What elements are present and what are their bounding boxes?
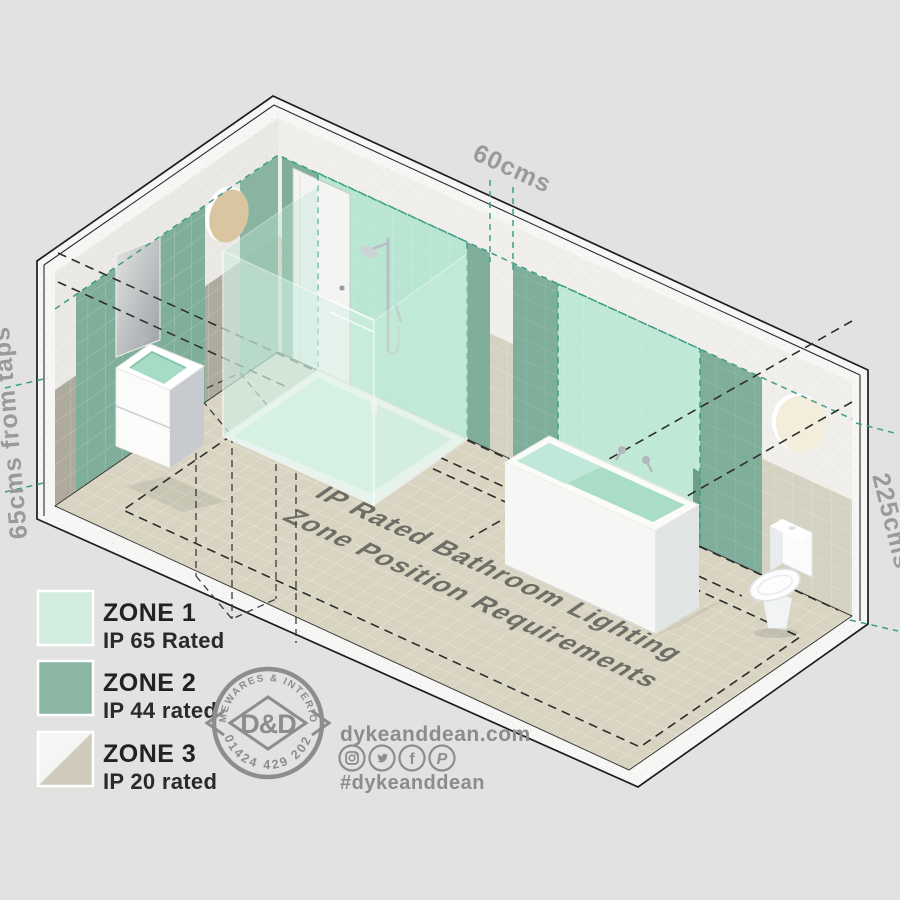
zone3-rating: IP 20 rated: [103, 769, 217, 794]
zone2-panel-shower-right: [467, 242, 490, 450]
zone2-label: ZONE 2: [103, 669, 196, 697]
facebook-icon[interactable]: f: [400, 746, 425, 771]
svg-text:D&D: D&D: [240, 709, 296, 739]
bathroom-zones-illustration: IP Rated Bathroom Lighting Zone Position…: [0, 0, 900, 900]
zone1-rating: IP 65 Rated: [103, 628, 225, 653]
zone2-swatch: [38, 661, 93, 715]
zone3-label: ZONE 3: [103, 740, 196, 768]
instagram-icon[interactable]: [340, 746, 365, 771]
hashtag[interactable]: #dykeanddean: [340, 772, 485, 794]
pinterest-icon[interactable]: P: [430, 746, 455, 771]
zone1-label: ZONE 1: [103, 599, 196, 627]
website-link[interactable]: dykeanddean.com: [340, 723, 531, 746]
zone3-swatch: [38, 732, 93, 786]
zone2-rating: IP 44 rated: [103, 698, 217, 723]
twitter-icon[interactable]: [370, 746, 395, 771]
dimension-left: 65cms from taps: [0, 325, 33, 540]
legend: ZONE 1 IP 65 Rated ZONE 2 IP 44 rated ZO…: [38, 591, 225, 794]
door-handle-icon: [339, 285, 344, 290]
svg-text:P: P: [437, 751, 448, 768]
svg-text:f: f: [409, 751, 415, 768]
infographic-canvas: IP Rated Bathroom Lighting Zone Position…: [0, 0, 900, 900]
contact-block: dykeanddean.com f P #dykeanddean: [340, 723, 531, 794]
social-icons: f P: [340, 746, 455, 771]
zone1-swatch: [38, 591, 93, 645]
dimension-right: 225cms: [866, 470, 900, 572]
